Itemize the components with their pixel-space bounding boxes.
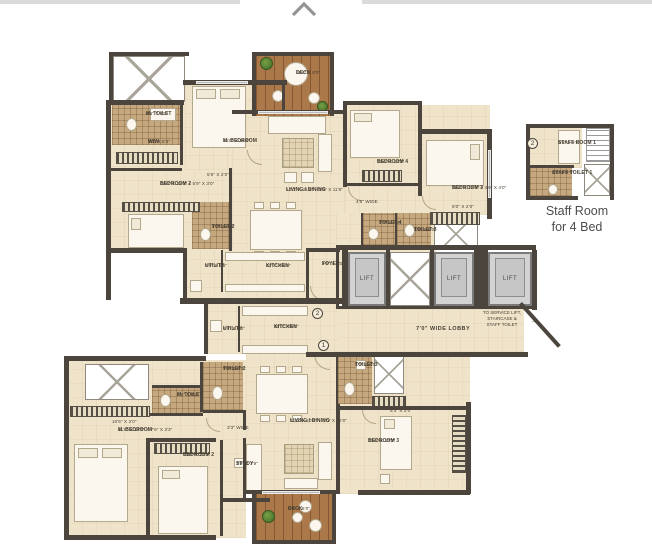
dining-table <box>250 210 302 250</box>
marker-staff-2: 2 <box>527 138 538 149</box>
wall <box>66 356 206 361</box>
window-dims: 5'6" X 2'0" <box>207 172 229 178</box>
kitchen-counter <box>225 284 305 292</box>
patio-table <box>292 512 303 523</box>
wall <box>332 492 336 542</box>
wc <box>212 386 223 400</box>
wc <box>126 118 137 131</box>
pillow <box>78 448 98 458</box>
wall <box>530 165 574 168</box>
marker-unit-2: 2 <box>312 308 323 319</box>
north-chevron-icon[interactable] <box>289 1 319 17</box>
sofa <box>318 442 332 480</box>
wall <box>395 213 397 249</box>
washer <box>190 280 202 292</box>
wc <box>200 228 211 241</box>
wall <box>343 101 420 105</box>
lift-shaft <box>390 252 430 306</box>
room-dims: 10'6" X 12'0" <box>377 159 404 165</box>
dining-table <box>256 374 308 414</box>
pillow <box>220 89 240 99</box>
void-shaft <box>113 56 185 102</box>
wall <box>361 213 363 245</box>
marker-number: 2 <box>316 310 320 317</box>
room-dims: 11'6" X 13'6" + 7'6" X 3'3" <box>118 427 172 433</box>
room-dims: 7'9" X 7'9" <box>236 461 258 467</box>
sofa <box>284 478 318 489</box>
wall <box>252 492 256 542</box>
room-dims: 8'0" X 6'6" <box>205 263 227 269</box>
wall <box>109 52 189 56</box>
void-shaft <box>85 364 149 400</box>
room-dims: 10'6" X 13'0" <box>368 438 395 444</box>
wall <box>243 438 246 498</box>
chair <box>260 366 270 373</box>
wall <box>466 402 471 494</box>
wc <box>548 184 558 195</box>
wall <box>106 100 111 300</box>
room-dims: 12'0" X 11'0" + 5'9" X 3'0" <box>160 181 214 187</box>
chair <box>286 202 296 209</box>
wall <box>106 248 186 253</box>
window <box>196 81 248 84</box>
wall <box>204 302 208 354</box>
wall <box>64 535 216 540</box>
wall <box>229 168 232 251</box>
wall <box>252 52 256 116</box>
wall <box>430 250 434 308</box>
wall <box>150 413 203 416</box>
side-table <box>301 172 314 183</box>
room-dims: 10'6" X 12'0" <box>183 452 210 458</box>
room-dims: 12'0" X 8'0" <box>266 263 291 269</box>
wall <box>64 356 69 540</box>
caption-line: Staff Room <box>546 204 608 220</box>
wall <box>336 245 536 250</box>
void-shaft <box>584 164 610 196</box>
room-dims: 12'0" X 16'6" <box>223 138 250 144</box>
marker-number: 1 <box>322 342 326 349</box>
room-dims: 5'6" X 3'9" <box>552 170 574 176</box>
room-toilet4-u2 <box>363 213 395 245</box>
room-dims: 8'6" X 8'0" <box>146 111 168 117</box>
coffee-table <box>282 138 314 168</box>
wall <box>342 250 348 308</box>
passage-dims: 3'3" WIDE <box>227 425 249 431</box>
room-dims: 10'0" X 8'0" <box>274 324 299 330</box>
wall <box>146 438 150 536</box>
pillow <box>384 419 395 429</box>
wall <box>330 52 334 116</box>
study-desk <box>246 444 262 492</box>
wall <box>152 385 203 388</box>
marker-number: 2 <box>531 140 535 147</box>
patio-chair <box>309 519 322 532</box>
coffee-table <box>284 444 314 474</box>
room-dims: 4'6" X 9'0" <box>322 261 344 267</box>
room-dims: 5'9" X 8'0" <box>414 227 436 233</box>
room-dims: 5'9" X 8'0" <box>223 366 245 372</box>
pillow <box>162 470 180 479</box>
lift-label: LIFT <box>436 276 472 282</box>
wardrobe-hatch <box>116 152 178 164</box>
wc <box>344 382 355 396</box>
window <box>262 491 320 494</box>
wall <box>532 250 537 310</box>
marker-unit-1: 1 <box>318 340 329 351</box>
void-shaft <box>434 222 478 246</box>
wc <box>368 228 379 240</box>
kitchen-counter <box>242 306 308 316</box>
wall <box>109 52 113 104</box>
window-dims: 10'6" X 2'0" <box>112 419 137 425</box>
room-dims: 6'0" X 6'0" <box>223 326 245 332</box>
service-note-line: STAFF TOILET <box>483 322 521 328</box>
passage-dims: 4'6" WIDE <box>356 199 378 205</box>
room-dims: 9'0" X 5'3" <box>148 139 170 145</box>
kitchen-counter <box>225 252 305 261</box>
side-table <box>380 474 390 484</box>
room-dims: 5'0" X 8'0" <box>355 362 377 368</box>
chair <box>276 366 286 373</box>
room-dims: 4'6" X 8'0" <box>177 392 199 398</box>
room-dims: 11'0" X 20'6" + 3'0" X 12'0" <box>290 418 347 424</box>
wall <box>343 105 347 187</box>
wall <box>386 250 390 308</box>
room-dims: 5'0" X 8'0" <box>212 224 234 230</box>
room-dims: 12'0" X 21'6" + 3'6" X 11'6" <box>286 187 343 193</box>
void-shaft <box>374 354 404 394</box>
lift-2: LIFT <box>434 252 474 306</box>
wall <box>306 352 528 357</box>
bed <box>558 130 580 164</box>
wall <box>180 103 183 165</box>
room-dims: 11'0" X 12'0" + 4'9" X 4'0" <box>452 185 506 191</box>
room-dims: 11'2" X 8'0" <box>296 70 320 76</box>
lobby-text: 7'0" WIDE LOBBY <box>416 326 470 333</box>
wall <box>252 540 336 544</box>
room-dims: 8'6" X 5'0" <box>558 140 580 146</box>
wall <box>526 124 530 200</box>
wall <box>336 306 532 309</box>
wall <box>610 124 614 200</box>
wall <box>336 354 338 404</box>
window-dims: 8'0" X 2'0" <box>452 204 474 210</box>
side-table <box>284 172 297 183</box>
chair <box>254 202 264 209</box>
plant <box>262 510 275 523</box>
chair <box>292 366 302 373</box>
top-bar-left <box>0 0 240 4</box>
kitchen-counter <box>242 345 308 354</box>
window <box>258 111 328 114</box>
floor-plan: M. TOILET8'6" X 8'0" WIW9'0" X 5'3" M. B… <box>0 0 652 544</box>
pillow <box>470 144 480 160</box>
wall <box>222 498 270 502</box>
chair <box>276 415 286 422</box>
lift-label: LIFT <box>490 276 530 282</box>
wc <box>160 394 171 407</box>
window-rail-hatch <box>70 406 150 417</box>
label-service-note: TO SERVICE LIFT, STAIRCASE & STAFF TOILE… <box>483 310 521 328</box>
wall <box>474 250 488 308</box>
pillow <box>354 113 372 122</box>
lift-label: LIFT <box>350 276 384 282</box>
wall <box>343 183 420 186</box>
pillow <box>196 89 216 99</box>
room-dims: 8'0" X 6'0" <box>288 506 310 512</box>
wall <box>106 100 184 105</box>
arrow-glyph: → <box>530 315 539 327</box>
wardrobe-hatch <box>362 170 402 182</box>
lift-1: LIFT <box>348 252 386 306</box>
wardrobe-hatch <box>430 212 480 225</box>
wall <box>110 168 182 171</box>
room-dims: 8'0" X 5'0" <box>379 220 401 226</box>
wall <box>306 248 340 252</box>
caption-line: for 4 Bed <box>546 220 608 236</box>
wall-diagonal <box>519 302 561 348</box>
window-dims: 5'3" X 2'0" <box>390 408 412 414</box>
plant <box>260 57 273 70</box>
wall <box>420 129 492 134</box>
staff-detail-caption: Staff Room for 4 Bed <box>546 204 608 235</box>
top-bar-right <box>362 0 652 4</box>
chair <box>260 415 270 422</box>
wardrobe-hatch <box>452 415 466 473</box>
wardrobe-hatch <box>122 202 200 212</box>
wall <box>526 124 614 128</box>
chair <box>270 202 280 209</box>
wall <box>183 248 187 302</box>
wall <box>220 440 223 536</box>
wall <box>150 438 216 442</box>
washer <box>210 320 222 332</box>
wall <box>358 490 470 495</box>
wall <box>306 250 309 302</box>
sofa <box>318 134 332 172</box>
lift-3: LIFT <box>488 252 532 306</box>
wall <box>221 250 223 292</box>
wall <box>418 101 422 196</box>
pillow <box>131 218 141 230</box>
wall <box>252 52 334 56</box>
wall <box>203 410 245 413</box>
pillow <box>102 448 122 458</box>
sofa <box>268 116 326 134</box>
wall <box>526 196 578 200</box>
